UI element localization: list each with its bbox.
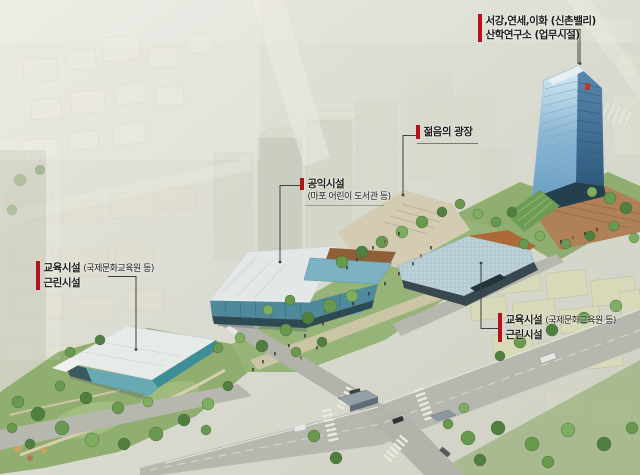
label-youth-plaza: 젊음의 광장 (416, 125, 472, 139)
label-education-right: 교육시설 (국제문화교육원 등) 근린시설 (498, 313, 616, 342)
label-plaza-line1: 젊음의 광장 (424, 125, 473, 139)
label-research-line2: 산학연구소 (업무시설) (486, 28, 596, 42)
label-education-right-subtitle: (국제문화교육원 등) (545, 316, 616, 326)
label-education-right-line2: 근린시설 (506, 328, 616, 342)
masterplan-rendering: 서강,연세,이화 (신촌밸리) 산학연구소 (업무시설) 젊음의 광장 공익시설… (0, 0, 640, 475)
label-public-facility: 공익시설 (마포 어린이 도서관 등) (300, 177, 391, 204)
label-education-right-title: 교육시설 (506, 314, 543, 326)
label-marker (416, 125, 420, 139)
label-marker (36, 261, 40, 290)
label-research-tower: 서강,연세,이화 (신촌밸리) 산학연구소 (업무시설) (478, 14, 596, 42)
label-public-line1: 공익시설 (308, 177, 391, 191)
label-education-left-line2: 근린시설 (44, 276, 154, 290)
label-marker (478, 14, 482, 42)
label-education-left: 교육시설 (국제문화교육원 등) 근린시설 (36, 261, 154, 290)
aerial-scene (0, 0, 640, 475)
label-research-line1: 서강,연세,이화 (신촌밸리) (486, 14, 596, 28)
label-marker (300, 178, 304, 190)
label-public-line2: (마포 어린이 도서관 등) (308, 191, 391, 204)
label-marker (498, 313, 502, 342)
label-education-left-subtitle: (국제문화교육원 등) (83, 264, 154, 274)
label-education-right-line1: 교육시설 (국제문화교육원 등) (506, 313, 616, 328)
label-education-left-line1: 교육시설 (국제문화교육원 등) (44, 261, 154, 276)
label-education-left-title: 교육시설 (44, 262, 81, 274)
